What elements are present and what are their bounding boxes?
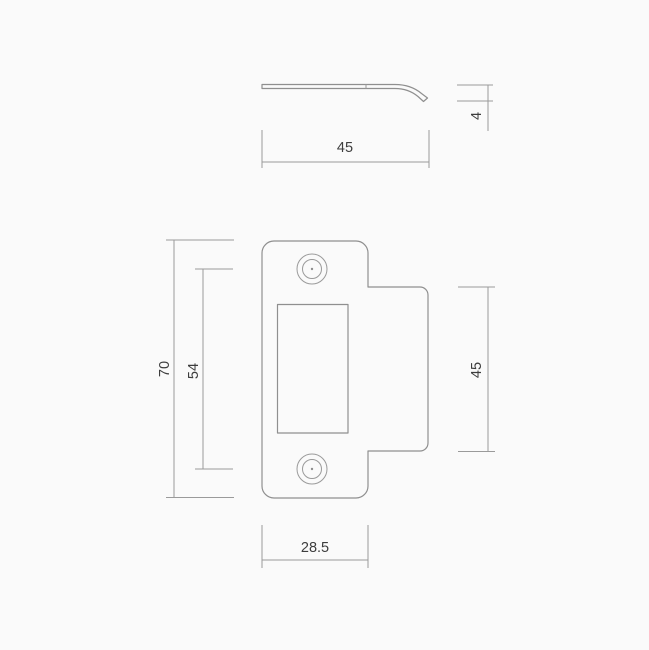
dimension-label-profile-lip-height: 4	[469, 112, 485, 120]
dimension-label-front-tab-height: 45	[469, 362, 485, 378]
dimension-label-front-hole-spacing: 54	[186, 363, 202, 379]
screw-hole-center-mark	[311, 468, 313, 470]
dimension-label-profile-overall-width: 45	[337, 140, 353, 156]
dimension-label-front-body-width: 28.5	[301, 540, 329, 556]
technical-drawing-canvas: 45 4 70	[0, 0, 649, 650]
dimension-label-front-overall-height: 70	[157, 361, 173, 377]
screw-hole-center-mark	[311, 268, 313, 270]
